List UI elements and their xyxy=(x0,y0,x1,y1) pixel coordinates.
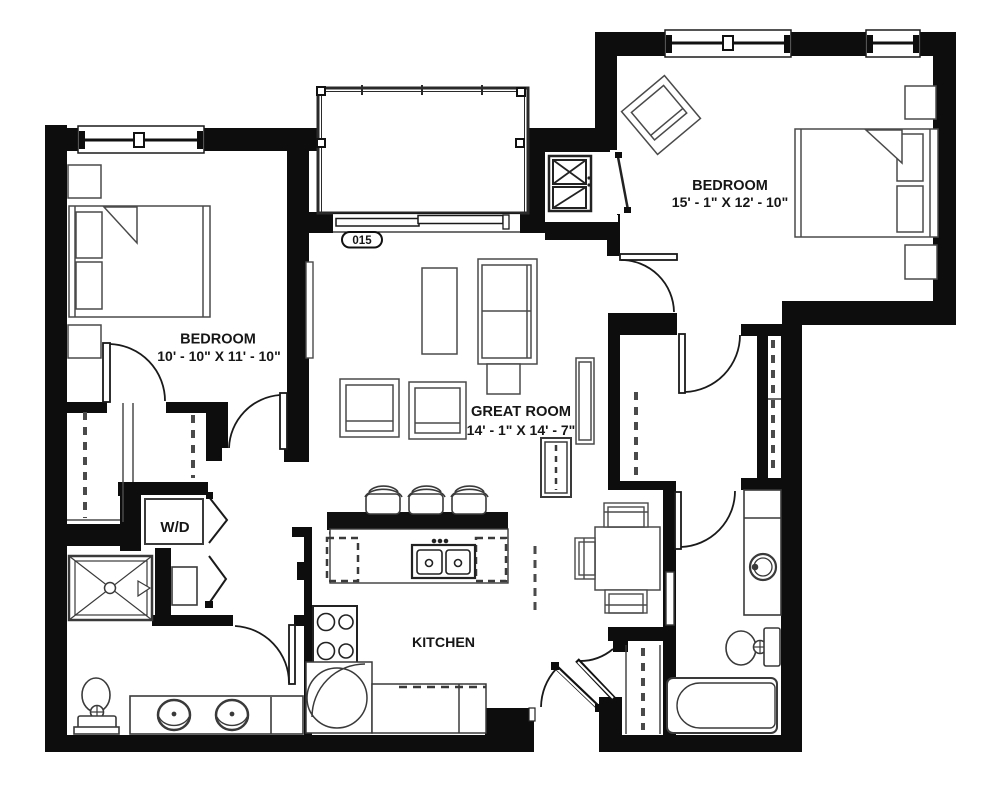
svg-text:W/D: W/D xyxy=(160,519,189,536)
svg-text:015: 015 xyxy=(352,235,372,247)
svg-text:BEDROOM: BEDROOM xyxy=(692,178,768,194)
svg-text:BEDROOM: BEDROOM xyxy=(180,332,256,348)
svg-text:14' - 1" X 14' - 7": 14' - 1" X 14' - 7" xyxy=(467,422,576,438)
svg-text:GREAT ROOM: GREAT ROOM xyxy=(471,404,571,420)
svg-text:10' - 10" X 11' - 10": 10' - 10" X 11' - 10" xyxy=(157,348,280,364)
svg-text:KITCHEN: KITCHEN xyxy=(412,635,475,651)
svg-text:15' - 1" X 12' - 10": 15' - 1" X 12' - 10" xyxy=(672,194,788,210)
